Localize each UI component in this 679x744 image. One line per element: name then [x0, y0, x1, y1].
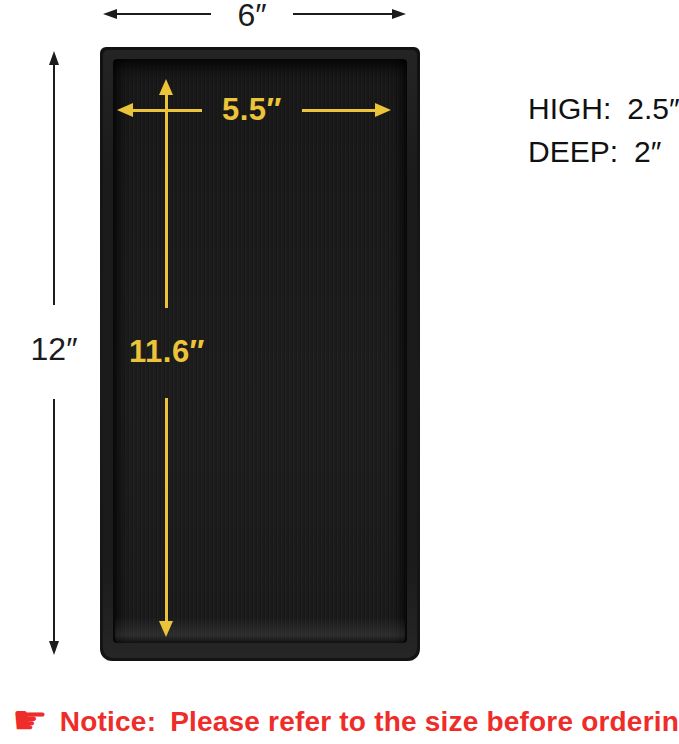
- product-dimension-diagram: 6″ 12″ 5.5″ 11.6″ HIGH: 2.5″ DEEP: 2″: [0, 0, 679, 744]
- arrow-right-icon: [392, 9, 406, 19]
- inner-width-label: 5.5″: [202, 92, 302, 128]
- notice-message: Please refer to the size before ordering: [170, 706, 679, 737]
- spec-high-label: HIGH:: [528, 92, 611, 126]
- spec-high: HIGH: 2.5″: [528, 92, 679, 126]
- spec-high-value: 2.5″: [627, 92, 679, 126]
- arrow-up-icon: [159, 79, 173, 95]
- pointing-hand-icon: ☛: [12, 700, 48, 740]
- side-specs: HIGH: 2.5″ DEEP: 2″: [528, 92, 679, 169]
- notice-text: Notice:Please refer to the size before o…: [60, 706, 679, 738]
- notice-banner: ☛ Notice:Please refer to the size before…: [12, 700, 667, 744]
- arrow-down-icon: [49, 641, 59, 655]
- arrow-right-icon: [375, 103, 391, 117]
- spec-deep: DEEP: 2″: [528, 135, 679, 169]
- inner-height-label: 11.6″: [106, 334, 228, 370]
- spec-deep-label: DEEP:: [528, 135, 618, 169]
- spec-deep-value: 2″: [634, 135, 661, 169]
- outer-width-label: 6″: [213, 0, 291, 33]
- outer-height-label: 12″: [12, 331, 96, 367]
- notice-label: Notice:: [60, 706, 156, 737]
- arrow-down-icon: [159, 621, 173, 637]
